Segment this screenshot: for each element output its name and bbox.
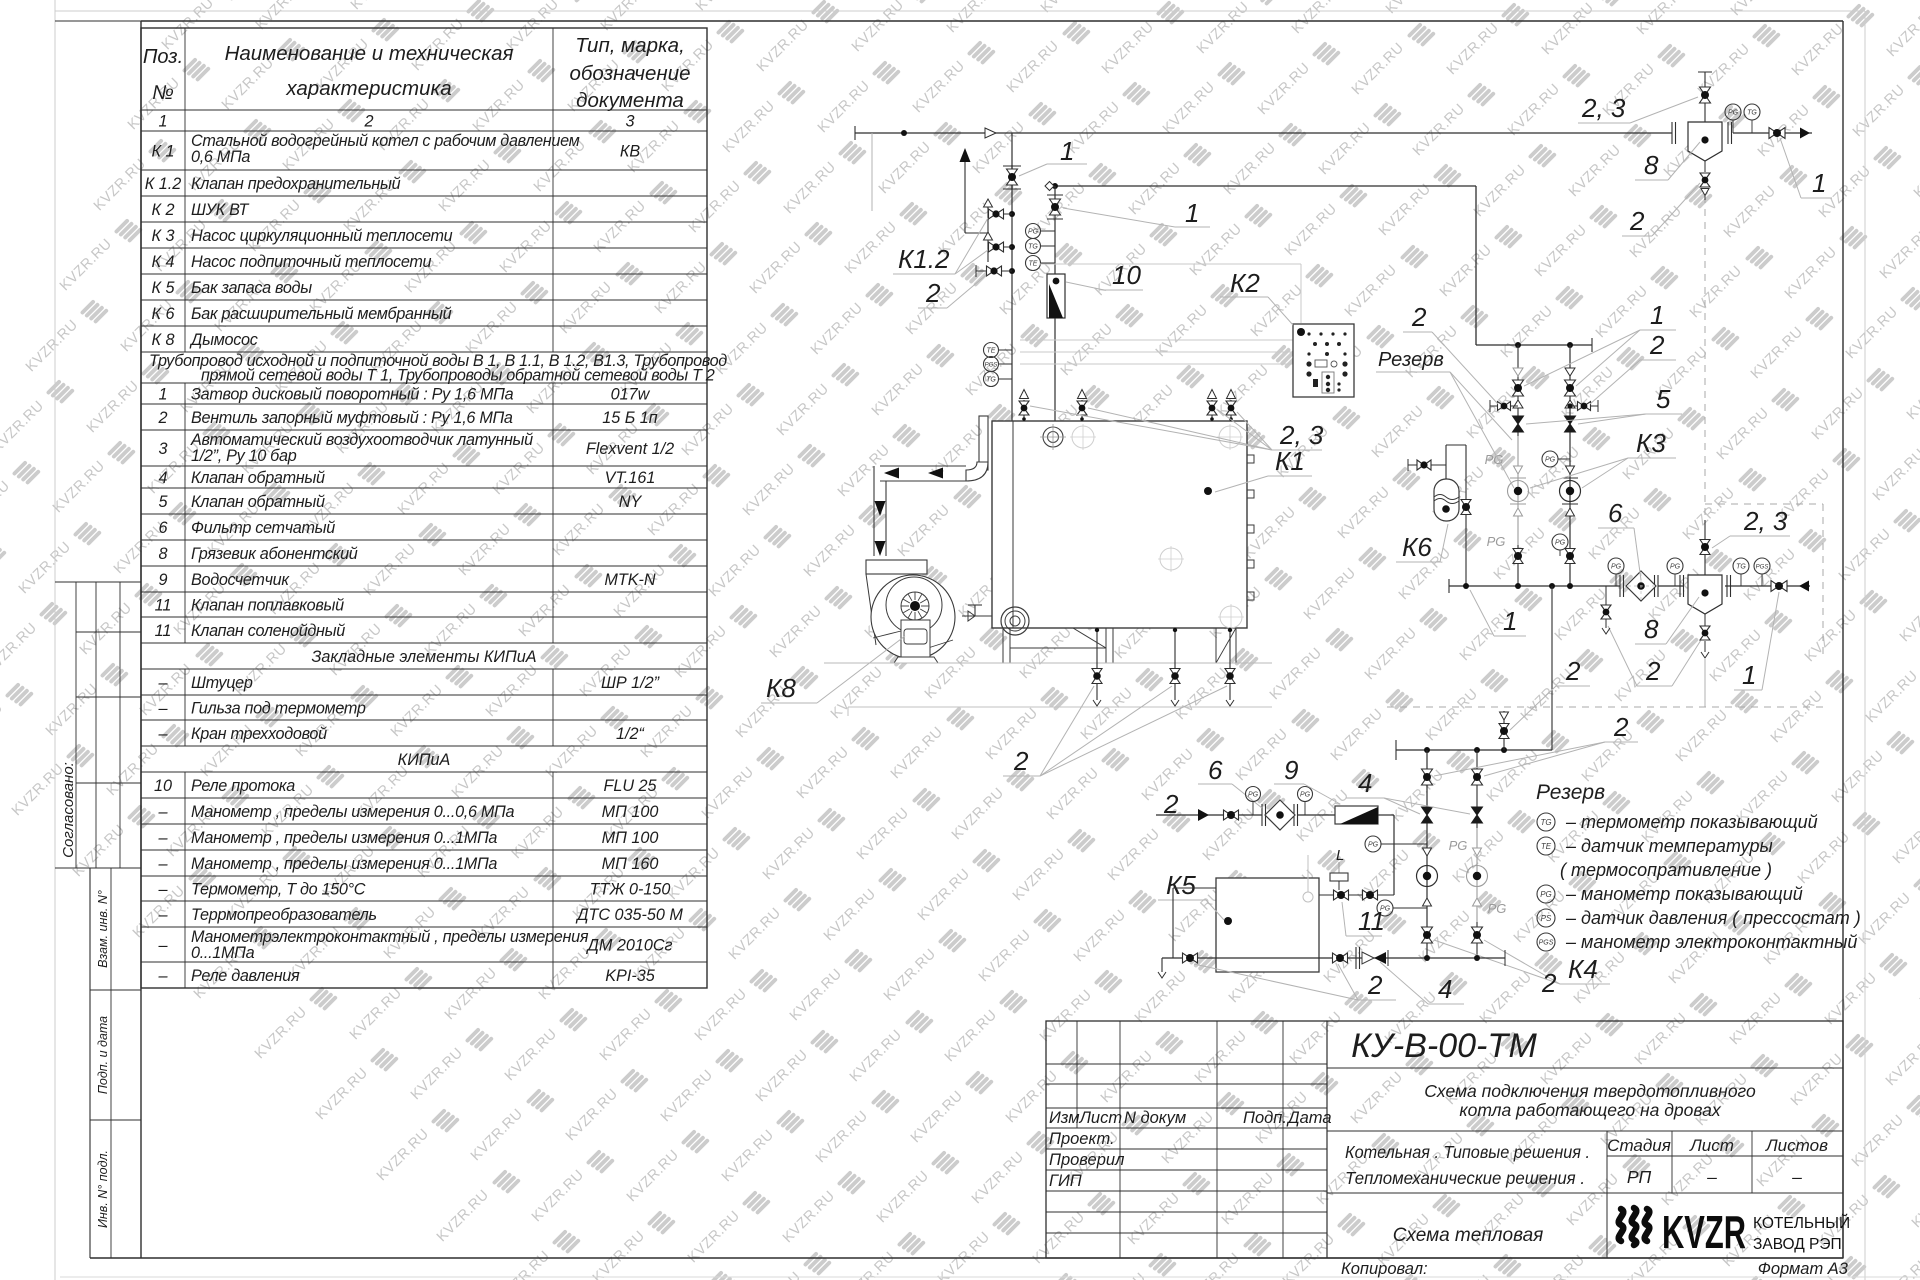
svg-text:Схема тепловая: Схема тепловая	[1393, 1225, 1544, 1246]
svg-text:К3: К3	[1636, 428, 1666, 458]
svg-text:– датчик температуры: – датчик температуры	[1565, 836, 1773, 856]
svg-text:PG: PG	[1028, 229, 1039, 236]
svg-text:Кран трехходовой: Кран трехходовой	[191, 725, 327, 743]
svg-text:К 6: К 6	[151, 305, 174, 323]
svg-text:2: 2	[1565, 656, 1581, 686]
svg-text:PG: PG	[1368, 842, 1379, 849]
svg-text:2, 3: 2, 3	[1743, 506, 1788, 536]
svg-text:ШУК ВТ: ШУК ВТ	[191, 201, 249, 219]
svg-text:KPI-35: KPI-35	[605, 967, 655, 985]
svg-text:Клапан обратный: Клапан обратный	[191, 469, 325, 487]
svg-text:2: 2	[1645, 656, 1661, 686]
svg-text:8: 8	[1644, 150, 1659, 180]
svg-text:2: 2	[1649, 330, 1665, 360]
svg-text:–: –	[157, 967, 168, 985]
svg-text:ТЕ: ТЕ	[1029, 261, 1038, 268]
svg-text:1: 1	[1503, 606, 1517, 636]
svg-text:PG: PG	[1300, 792, 1311, 799]
svg-text:ДМ 2010Сг: ДМ 2010Сг	[585, 937, 672, 955]
svg-text:–: –	[157, 937, 168, 955]
svg-text:0,6 МПа: 0,6 МПа	[191, 148, 250, 166]
svg-text:Листов: Листов	[1765, 1136, 1828, 1155]
svg-text:4: 4	[1358, 768, 1372, 798]
svg-text:–: –	[157, 674, 168, 692]
svg-text:К 5: К 5	[151, 279, 175, 297]
svg-text:Схема подключения твердотоплив: Схема подключения твердотопливного	[1424, 1081, 1756, 1101]
svg-text:МП 100: МП 100	[602, 829, 659, 847]
svg-text:ТG: ТG	[1028, 244, 1038, 251]
svg-text:–: –	[1706, 1167, 1717, 1187]
svg-text:–: –	[1791, 1167, 1802, 1187]
svg-text:1/2”, Ру 10 бар: 1/2”, Ру 10 бар	[191, 447, 297, 465]
svg-text:ТТЖ 0-150: ТТЖ 0-150	[590, 881, 671, 899]
svg-text:Клапан соленойдный: Клапан соленойдный	[191, 622, 345, 640]
svg-text:11: 11	[1358, 906, 1385, 936]
svg-text:Резерв: Резерв	[1536, 781, 1605, 804]
svg-text:ДТС 035-50 М: ДТС 035-50 М	[575, 906, 683, 924]
svg-text:ТG: ТG	[1540, 818, 1551, 827]
svg-text:–: –	[157, 906, 168, 924]
svg-text:N докум: N докум	[1124, 1109, 1186, 1127]
svg-text:Манометр , пределы измерения: Манометр , пределы измерения 0...1МПа	[191, 855, 497, 873]
svg-text:Насос циркуляционный теплосети: Насос циркуляционный теплосети	[191, 227, 453, 245]
svg-text:1: 1	[1742, 660, 1756, 690]
svg-text:–: –	[157, 725, 168, 743]
svg-text:3: 3	[158, 440, 167, 458]
svg-text:–: –	[157, 700, 168, 718]
svg-text:К4: К4	[1568, 954, 1598, 984]
svg-text:К 8: К 8	[151, 331, 174, 349]
svg-text:0...1МПа: 0...1МПа	[191, 944, 255, 962]
svg-text:характеристика: характеристика	[285, 77, 451, 100]
svg-text:К2: К2	[1230, 268, 1260, 298]
svg-text:Тип, марка,: Тип, марка,	[575, 34, 685, 57]
svg-text:Реле давления: Реле давления	[191, 967, 300, 985]
svg-text:1: 1	[158, 113, 167, 131]
svg-text:Согласовано:: Согласовано:	[60, 762, 77, 858]
svg-text:11: 11	[155, 622, 172, 640]
svg-text:– термометр показывающий: – термометр показывающий	[1565, 812, 1818, 832]
svg-text:Штуцер: Штуцер	[191, 674, 253, 692]
svg-text:КУ-В-00-ТМ: КУ-В-00-ТМ	[1351, 1027, 1537, 1065]
svg-text:–: –	[157, 881, 168, 899]
svg-text:Копировал:: Копировал:	[1341, 1260, 1428, 1278]
svg-text:К8: К8	[766, 673, 796, 703]
svg-text:К 3: К 3	[151, 227, 174, 245]
svg-text:ТG: ТG	[1736, 564, 1746, 571]
svg-text:6: 6	[158, 519, 167, 537]
svg-text:ТG: ТG	[1747, 110, 1757, 117]
svg-text:2: 2	[363, 113, 373, 131]
svg-text:–: –	[157, 803, 168, 821]
svg-text:Термометр, Т до 150°С: Термометр, Т до 150°С	[191, 881, 366, 899]
svg-text:PGS: PGS	[1539, 940, 1554, 947]
svg-text:ТG: ТG	[986, 377, 996, 384]
svg-text:2: 2	[1163, 789, 1179, 819]
svg-text:Реле протока: Реле протока	[191, 777, 295, 795]
svg-text:Наименование и техническая: Наименование и техническая	[225, 42, 514, 65]
svg-text:10: 10	[154, 777, 172, 795]
svg-text:PGS: PGS	[985, 362, 998, 368]
svg-text:2: 2	[1541, 968, 1557, 998]
svg-text:Формат А3: Формат А3	[1758, 1260, 1849, 1278]
svg-text:Клапан предохранительный: Клапан предохранительный	[191, 175, 401, 193]
svg-text:9: 9	[158, 571, 167, 589]
svg-text:Дата: Дата	[1286, 1109, 1332, 1127]
svg-text:KVZR: KVZR	[1662, 1206, 1746, 1258]
svg-text:1: 1	[1185, 198, 1199, 228]
svg-text:PG: PG	[1555, 540, 1566, 547]
svg-text:9: 9	[1284, 755, 1298, 785]
svg-text:6: 6	[1208, 755, 1223, 785]
svg-text:PG: PG	[1485, 452, 1504, 467]
svg-text:VT.161: VT.161	[605, 469, 656, 487]
svg-text:5: 5	[1656, 384, 1671, 414]
svg-text:PG: PG	[1670, 564, 1681, 571]
svg-text:PG: PG	[1488, 901, 1507, 916]
svg-text:–: –	[157, 855, 168, 873]
svg-text:К5: К5	[1166, 870, 1196, 900]
svg-text:1: 1	[1060, 136, 1074, 166]
svg-text:ГИП: ГИП	[1049, 1172, 1082, 1190]
svg-text:PG: PG	[1611, 564, 1622, 571]
svg-text:Проверил: Проверил	[1049, 1151, 1124, 1169]
svg-text:Клапан поплавковый: Клапан поплавковый	[191, 597, 344, 615]
svg-text:PG: PG	[1545, 457, 1556, 464]
svg-text:L: L	[1336, 847, 1344, 864]
svg-text:PG: PG	[1487, 534, 1506, 549]
svg-text:PG: PG	[1248, 792, 1259, 799]
svg-text:№: №	[152, 82, 174, 104]
svg-text:Бак расширительный мембранный: Бак расширительный мембранный	[191, 305, 452, 323]
svg-text:4: 4	[158, 469, 167, 487]
svg-text:15 Б 1п: 15 Б 1п	[602, 409, 658, 427]
svg-text:8: 8	[158, 545, 167, 563]
svg-text:3: 3	[625, 113, 634, 131]
svg-text:2: 2	[157, 409, 167, 427]
svg-text:прямой сетевой воды Т 1, Тру: прямой сетевой воды Т 1, Трубопроводы об…	[201, 367, 715, 385]
svg-text:2: 2	[1013, 746, 1029, 776]
svg-text:Грязевик абонентский: Грязевик абонентский	[191, 545, 358, 563]
svg-text:NY: NY	[619, 493, 643, 511]
svg-text:Резерв: Резерв	[1378, 349, 1444, 371]
svg-text:РП: РП	[1627, 1167, 1652, 1187]
svg-text:PG: PG	[1540, 890, 1552, 899]
svg-text:Проект.: Проект.	[1049, 1130, 1115, 1148]
svg-text:Flexvent 1/2: Flexvent 1/2	[586, 440, 674, 458]
svg-text:ТЕ: ТЕ	[1541, 842, 1552, 851]
svg-text:Закладные элементы КИПиА: Закладные элементы КИПиА	[311, 648, 536, 666]
svg-text:2: 2	[1629, 206, 1645, 236]
svg-text:котла работающего на дровах: котла работающего на дровах	[1459, 1100, 1721, 1120]
svg-text:Взам. инв. N°: Взам. инв. N°	[96, 890, 110, 968]
svg-text:МП 160: МП 160	[602, 855, 659, 873]
svg-text:2, 3: 2, 3	[1279, 420, 1324, 450]
svg-text:Котельная . Типовые решения .: Котельная . Типовые решения .	[1345, 1142, 1590, 1162]
svg-text:11: 11	[155, 597, 172, 615]
svg-text:Подп. и дата: Подп. и дата	[96, 1016, 110, 1094]
svg-text:FLU 25: FLU 25	[603, 777, 657, 795]
svg-text:2: 2	[925, 278, 941, 308]
svg-text:Террмопреобразователь: Террмопреобразователь	[191, 906, 377, 924]
svg-text:Инв. N° подл.: Инв. N° подл.	[96, 1150, 110, 1228]
svg-text:ТЕ: ТЕ	[987, 348, 996, 355]
svg-text:ЗАВОД РЭП: ЗАВОД РЭП	[1753, 1236, 1842, 1253]
svg-text:Лист: Лист	[1689, 1136, 1734, 1155]
svg-text:6: 6	[1608, 498, 1623, 528]
svg-text:КОТЕЛЬНЫЙ: КОТЕЛЬНЫЙ	[1753, 1214, 1850, 1232]
svg-text:MTK-N: MTK-N	[604, 571, 656, 589]
svg-text:Поз.: Поз.	[143, 46, 183, 68]
svg-text:Водосчетчик: Водосчетчик	[191, 571, 290, 589]
svg-text:К1.2: К1.2	[898, 244, 950, 274]
svg-text:2: 2	[1367, 970, 1383, 1000]
svg-text:– датчик давления ( прессоста: – датчик давления ( прессостат )	[1565, 908, 1861, 928]
svg-text:К6: К6	[1402, 532, 1432, 562]
svg-text:PS: PS	[1541, 914, 1552, 923]
svg-text:–: –	[157, 829, 168, 847]
svg-text:2, 3: 2, 3	[1581, 93, 1626, 123]
svg-text:документа: документа	[576, 89, 684, 112]
svg-text:1/2“: 1/2“	[616, 725, 646, 743]
svg-text:МП 100: МП 100	[602, 803, 659, 821]
svg-text:Насос подпиточный теплосети: Насос подпиточный теплосети	[191, 253, 432, 271]
svg-text:PGS: PGS	[1756, 564, 1769, 570]
svg-text:4: 4	[1438, 974, 1452, 1004]
svg-text:К 4: К 4	[151, 253, 174, 271]
svg-text:1: 1	[1812, 168, 1826, 198]
svg-text:1: 1	[1650, 300, 1664, 330]
svg-text:Дымосос: Дымосос	[189, 331, 258, 349]
svg-text:017w: 017w	[611, 386, 651, 404]
svg-text:– манометр электроконтактный: – манометр электроконтактный	[1565, 932, 1857, 952]
svg-text:ИзмЛист: ИзмЛист	[1049, 1109, 1122, 1127]
svg-text:5: 5	[158, 493, 168, 511]
svg-text:2: 2	[1613, 712, 1629, 742]
svg-text:КВ: КВ	[620, 143, 641, 161]
svg-text:1: 1	[158, 386, 167, 404]
svg-text:2: 2	[1411, 302, 1427, 332]
svg-text:Манометр , пределы измерения: Манометр , пределы измерения 0...0,6 МПа	[191, 803, 514, 821]
svg-text:PG: PG	[1449, 838, 1468, 853]
svg-text:Вентиль запорный муфтовый : Р: Вентиль запорный муфтовый : Ру 1,6 МПа	[191, 409, 513, 427]
svg-text:обозначение: обозначение	[569, 62, 690, 85]
svg-text:– манометр показывающий: – манометр показывающий	[1565, 884, 1803, 904]
svg-text:8: 8	[1644, 614, 1659, 644]
svg-text:К 2: К 2	[151, 201, 174, 219]
svg-text:К 1: К 1	[151, 143, 174, 161]
svg-text:Стадия: Стадия	[1607, 1136, 1671, 1155]
svg-text:ШР 1/2”: ШР 1/2”	[601, 674, 660, 692]
svg-text:( термосопративление ): ( термосопративление )	[1560, 860, 1772, 880]
svg-text:Тепломеханические решения .: Тепломеханические решения .	[1345, 1168, 1585, 1188]
svg-text:Фильтр сетчатый: Фильтр сетчатый	[191, 519, 335, 537]
svg-text:Клапан обратный: Клапан обратный	[191, 493, 325, 511]
svg-text:Манометр , пределы измерения: Манометр , пределы измерения 0...1МПа	[191, 829, 497, 847]
svg-text:Подп.: Подп.	[1243, 1109, 1287, 1127]
svg-text:К 1.2: К 1.2	[145, 175, 182, 193]
svg-text:PG: PG	[1728, 110, 1739, 117]
svg-text:Гильза под термометр: Гильза под термометр	[191, 700, 366, 718]
svg-text:Затвор дисковый поворотный :: Затвор дисковый поворотный : Ру 1,6 МПа	[191, 386, 514, 404]
svg-text:КИПиА: КИПиА	[398, 751, 451, 769]
svg-text:Бак запаса воды: Бак запаса воды	[191, 279, 312, 297]
